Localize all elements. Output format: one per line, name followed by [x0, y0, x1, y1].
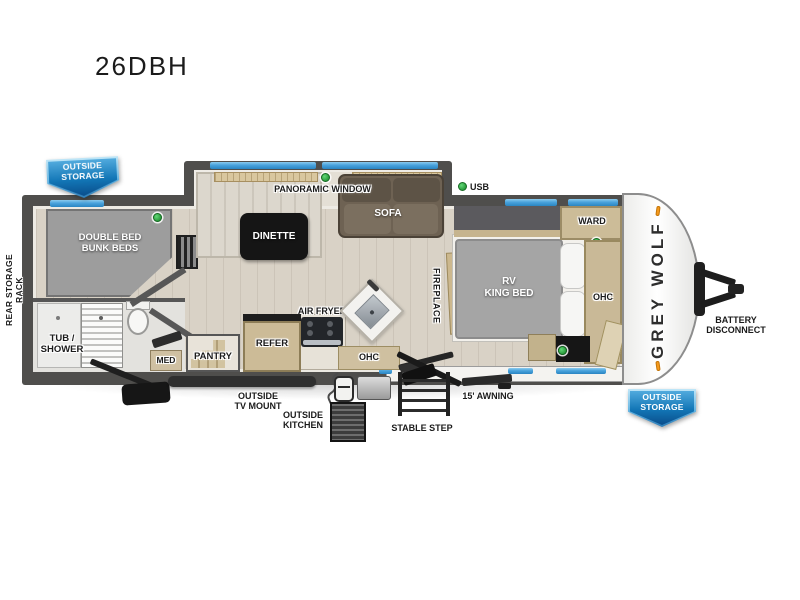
outside-storage-badge-bottom: OUTSIDE STORAGE: [628, 389, 696, 427]
window-valance: [214, 172, 318, 182]
cooler-lid-line: [338, 386, 350, 388]
window-strip: [556, 368, 606, 374]
stable-step-ladder: [398, 372, 450, 416]
outside-kitchen-grill: [330, 402, 366, 442]
burner: [327, 330, 333, 336]
burner: [327, 321, 333, 327]
outside-storage-badge-top: OUTSIDE STORAGE: [46, 156, 120, 200]
med-label: MED: [148, 356, 184, 366]
stable-step-label: STABLE STEP: [384, 423, 460, 433]
awning-arm: [498, 383, 511, 389]
outside-tv-mount-bar: [168, 376, 316, 387]
page-title: 26DBH: [95, 53, 189, 79]
toilet-bowl: [127, 308, 149, 335]
led-dot-window: [321, 173, 330, 182]
stove-handle: [303, 340, 341, 345]
led-dot-usb: [458, 182, 467, 191]
pillow: [560, 243, 586, 289]
window-strip: [50, 200, 104, 207]
pillow: [560, 291, 586, 337]
awning-label: 15' AWNING: [458, 391, 518, 401]
outside-kitchen-label: OUTSIDE KITCHEN: [278, 410, 328, 431]
brand-logo: GREY WOLF: [648, 216, 668, 364]
window-strip: [322, 162, 438, 169]
window-strip: [505, 199, 557, 206]
kitchen-ohc-label: OHC: [350, 352, 388, 362]
usb-label: USB: [470, 182, 496, 192]
king-bed-label: RV KING BED: [462, 276, 556, 300]
bedroom-ohc-label: OHC: [586, 292, 620, 302]
rear-storage-rack-label: REAR STORAGE RACK: [5, 240, 25, 340]
floorplan-canvas: 26DBH DOUBLE BED BUNK BEDS TUB / SHOWER …: [0, 0, 800, 600]
led-dot-bed-foot: [558, 346, 567, 355]
outside-kitchen-griddle: [357, 376, 391, 400]
badge-text: OUTSIDE STORAGE: [46, 160, 119, 183]
refer-label: REFER: [248, 339, 296, 350]
fireplace-label: FIREPLACE: [431, 258, 441, 334]
pantry-label: PANTRY: [186, 352, 240, 363]
panoramic-window-label: PANORAMIC WINDOW: [250, 184, 395, 194]
hitch-coupler: [728, 284, 744, 294]
sofa-label: SOFA: [358, 208, 418, 220]
burner: [307, 321, 313, 327]
rear-rack-cargo: [121, 381, 170, 405]
foot-bench: [528, 334, 556, 361]
tub-shower-label: TUB / SHOWER: [34, 334, 90, 356]
window-strip: [508, 368, 533, 374]
battery-disconnect-label: BATTERY DISCONNECT: [696, 315, 776, 336]
stove-air-fryer: [301, 317, 343, 347]
shower-drain: [99, 316, 103, 320]
bedroom-ohc-over-bed: [454, 206, 562, 237]
badge-text: OUTSIDE STORAGE: [628, 393, 696, 413]
bunk-bed-label: DOUBLE BED BUNK BEDS: [58, 232, 162, 255]
window-strip: [210, 162, 316, 169]
burner: [307, 330, 313, 336]
bunk-stair-rail: [176, 235, 198, 269]
outside-kitchen-cooler: [334, 376, 354, 402]
led-dot-bunk: [153, 213, 162, 222]
outside-tv-mount-label: OUTSIDE TV MOUNT: [224, 391, 292, 412]
sofa-back-cushion: [393, 178, 440, 202]
dinette-label: DINETTE: [240, 231, 308, 243]
ward-label: WARD: [570, 216, 614, 226]
window-strip: [568, 199, 618, 206]
tub-drain: [56, 316, 60, 320]
